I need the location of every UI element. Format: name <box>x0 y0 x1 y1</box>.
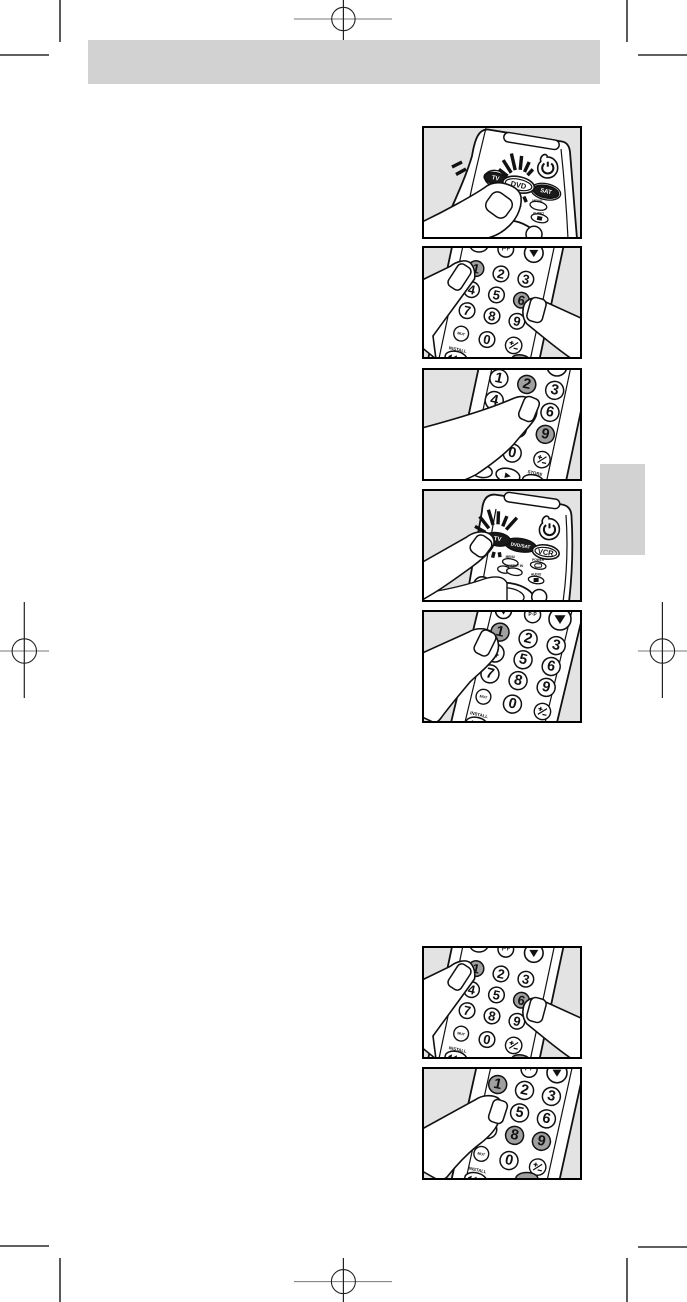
svg-text:P·P: P·P <box>528 612 537 618</box>
